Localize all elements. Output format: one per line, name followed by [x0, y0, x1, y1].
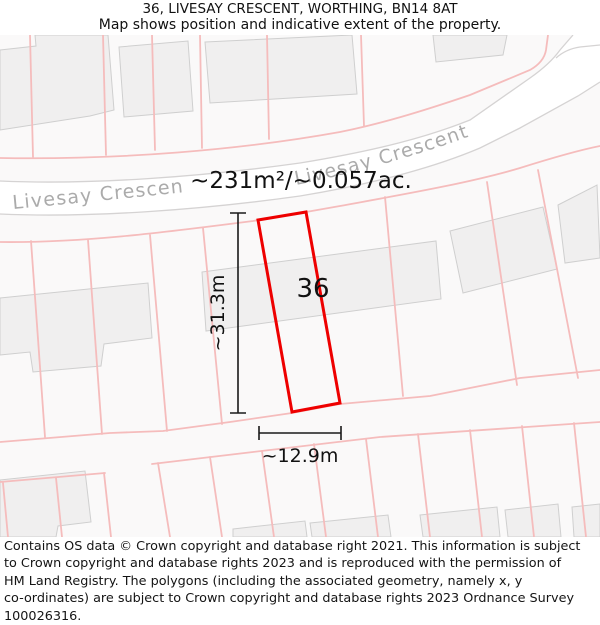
- map-header: 36, LIVESAY CRESCENT, WORTHING, BN14 8AT…: [0, 0, 600, 35]
- copyright-line: co-ordinates) are subject to Crown copyr…: [4, 590, 600, 607]
- copyright-line: 100026316.: [4, 608, 600, 625]
- building: [205, 35, 357, 103]
- dimension-height-label: ~31.3m: [207, 275, 229, 352]
- copyright-line: HM Land Registry. The polygons (includin…: [4, 573, 600, 590]
- copyright-line: Contains OS data © Crown copyright and d…: [4, 538, 600, 555]
- property-extent-map: Livesay Crescent Livesay Crescent 36 ~23…: [0, 35, 600, 537]
- dimension-width-label: ~12.9m: [262, 445, 339, 467]
- map-canvas: Livesay Crescent Livesay Crescent 36 ~23…: [0, 35, 600, 537]
- property-number-label: 36: [296, 274, 329, 304]
- area-label: ~231m²/~0.057ac.: [190, 168, 412, 194]
- copyright-notice: Contains OS data © Crown copyright and d…: [0, 538, 600, 625]
- building: [119, 41, 193, 117]
- copyright-line: to Crown copyright and database rights 2…: [4, 555, 600, 572]
- page-title: 36, LIVESAY CRESCENT, WORTHING, BN14 8AT: [0, 0, 600, 17]
- page-subtitle: Map shows position and indicative extent…: [0, 17, 600, 34]
